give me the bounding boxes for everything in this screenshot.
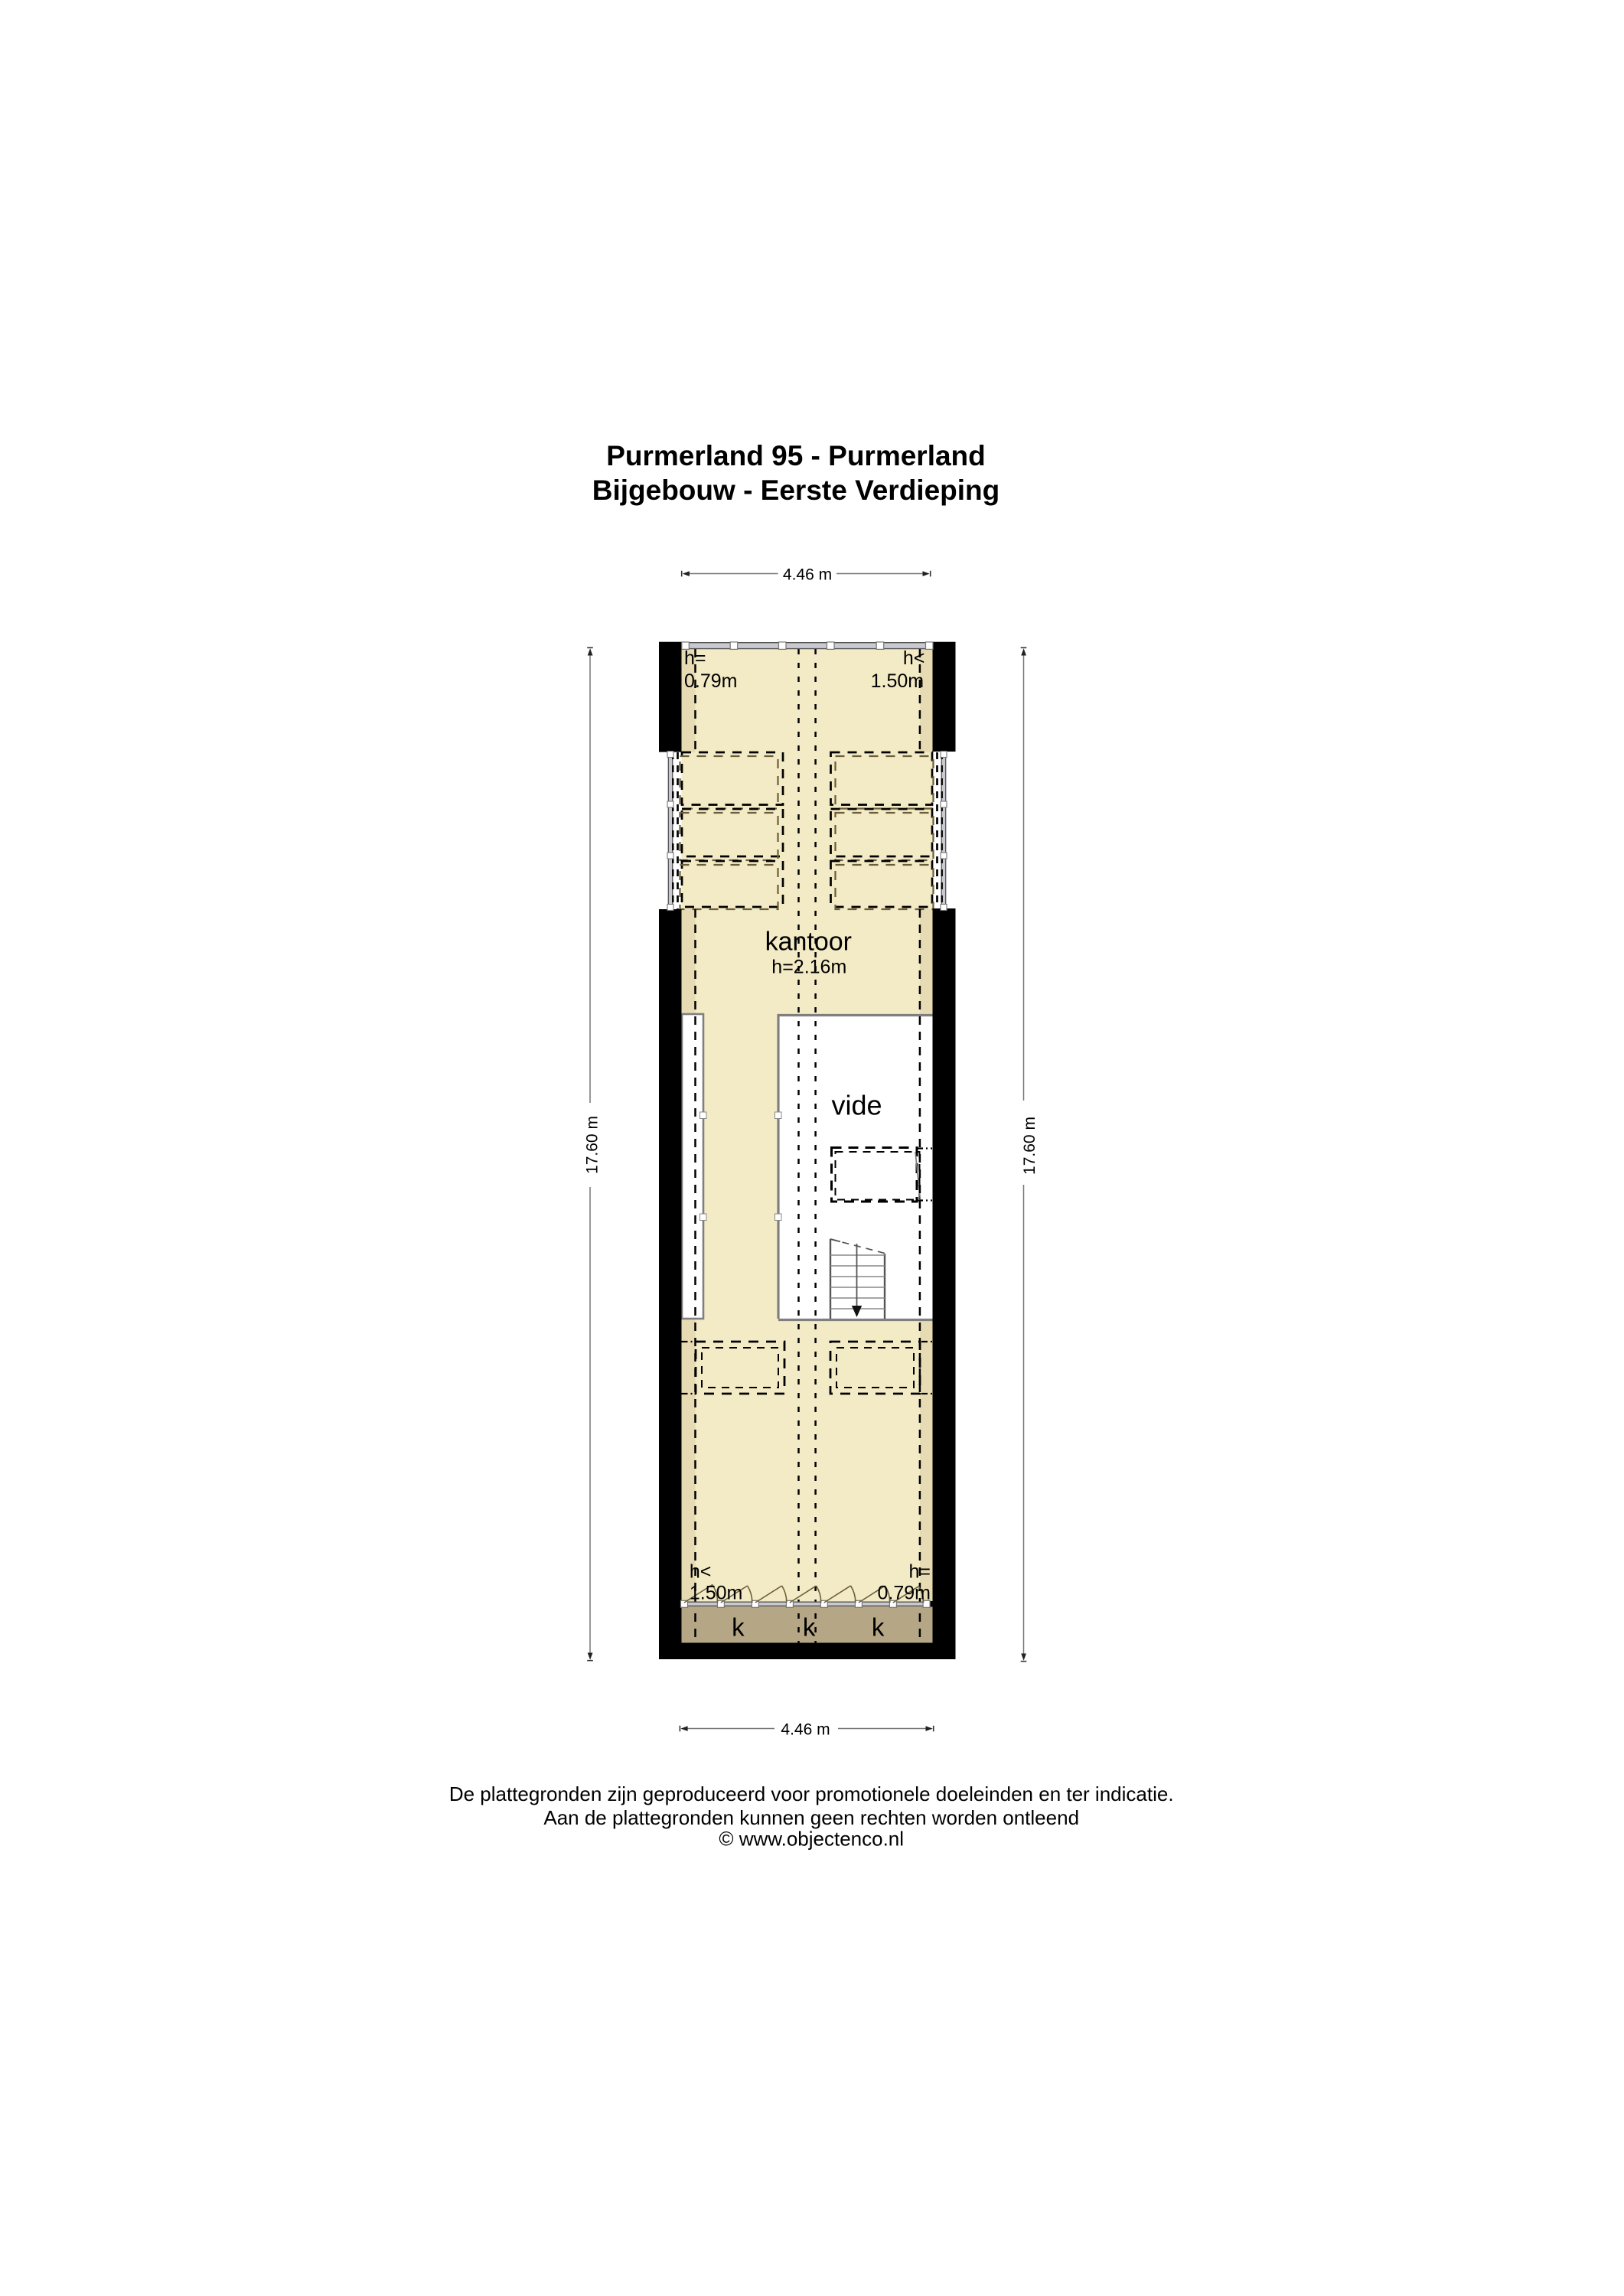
- svg-text:h=: h=: [684, 647, 706, 669]
- svg-text:h<: h<: [690, 1561, 712, 1583]
- svg-text:h=2.16m: h=2.16m: [771, 957, 846, 978]
- svg-text:Purmerland 95 - Purmerland: Purmerland 95 - Purmerland: [606, 440, 986, 471]
- svg-text:k: k: [732, 1613, 745, 1642]
- svg-text:17.60 m: 17.60 m: [1021, 1117, 1039, 1175]
- svg-text:k: k: [872, 1613, 885, 1642]
- svg-text:4.46 m: 4.46 m: [783, 566, 832, 584]
- svg-text:Aan de plattegronden kunnen ge: Aan de plattegronden kunnen geen rechten…: [543, 1806, 1079, 1829]
- svg-text:© www.objectenco.nl: © www.objectenco.nl: [719, 1828, 904, 1851]
- svg-text:De plattegronden zijn geproduc: De plattegronden zijn geproduceerd voor …: [449, 1782, 1174, 1805]
- svg-text:4.46 m: 4.46 m: [781, 1721, 830, 1739]
- svg-text:17.60 m: 17.60 m: [584, 1116, 602, 1174]
- svg-text:h=: h=: [908, 1561, 931, 1583]
- svg-text:0.79m: 0.79m: [684, 670, 737, 692]
- svg-text:vide: vide: [831, 1090, 882, 1121]
- svg-text:1.50m: 1.50m: [690, 1583, 742, 1604]
- svg-text:h<: h<: [903, 647, 925, 669]
- svg-text:1.50m: 1.50m: [871, 670, 924, 692]
- svg-text:Bijgebouw - Eerste Verdieping: Bijgebouw - Eerste Verdieping: [592, 475, 1000, 506]
- svg-text:0.79m: 0.79m: [878, 1583, 931, 1604]
- svg-text:k: k: [803, 1613, 816, 1642]
- svg-text:kantoor: kantoor: [765, 928, 852, 957]
